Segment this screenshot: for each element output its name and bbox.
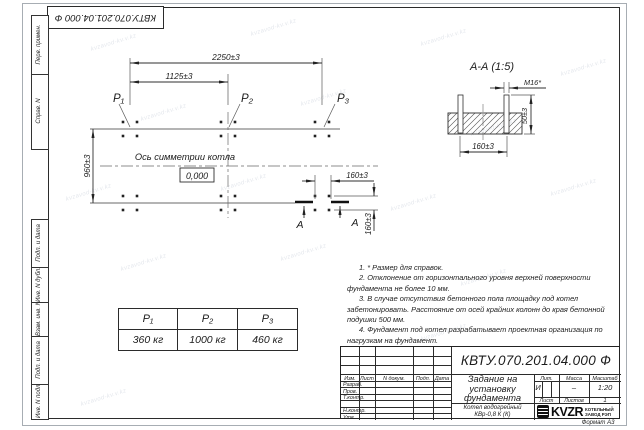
titleblock-col-podp: Подп. <box>413 376 433 382</box>
titleblock-gridline <box>341 365 451 366</box>
titleblock-product-line2: КВр-0,8 К (К) <box>451 411 534 418</box>
titleblock-scale-value: 1:20 <box>589 383 621 392</box>
titleblock-row-razrab: Разраб. <box>343 382 363 388</box>
dim-960-label: 960±3 <box>82 154 92 177</box>
drawing-sheet: kvzavod-kv.v.kz kvzavod-kv.v.kz kvzavod-… <box>0 0 644 430</box>
org-name-line1: КОТЕЛЬНЫЙ <box>585 407 614 412</box>
load-p2-label: P₂ <box>241 93 254 105</box>
titleblock-gridline <box>375 347 376 420</box>
titleblock-gridline <box>433 347 434 420</box>
load-table-value-p1: 360 кг <box>118 329 178 351</box>
titleblock-col-list: Лист <box>359 376 375 382</box>
titleblock-lit-label: Лит. <box>534 376 559 382</box>
titleblock-row-utv: Утв. <box>343 415 355 421</box>
load-p1-label: P₁ <box>113 93 125 105</box>
titleblock-lit-value: И <box>534 383 542 392</box>
load-table-header-p3: P₃ <box>237 308 298 330</box>
titleblock-gridline <box>542 381 543 397</box>
titleblock-col-izm: Изм. <box>341 376 359 382</box>
section-mark-a-left: А <box>295 219 303 231</box>
dim-50-label: 50±3 <box>520 108 529 124</box>
titleblock-gridline <box>413 347 414 420</box>
section-title: А-А (1:5) <box>469 61 514 73</box>
note-2: 2. Отклонение от горизонтального уровня … <box>347 273 607 294</box>
titleblock-massa-label: Масса <box>559 376 589 382</box>
note-4: 4. Фундамент под котел разрабатывает про… <box>347 325 607 346</box>
titleblock-sheets-value: 1 <box>589 398 621 404</box>
titleblock-sheet-label: Лист <box>534 398 559 404</box>
titleblock-product-line1: Котел водогрейный <box>451 404 534 411</box>
kvzr-logo-text: KVZR <box>551 405 583 419</box>
section-view: А-А (1:5) М16* 50±3 160±3 <box>448 61 546 157</box>
titleblock-massa-value: – <box>559 383 589 392</box>
load-table-header-p1: P₁ <box>118 308 178 330</box>
dim-1125-label: 1125±3 <box>165 71 192 81</box>
titleblock-row-nkontr: Н.контр. <box>343 408 366 414</box>
dim-160-horizontal-label: 160±3 <box>346 171 368 180</box>
kvzr-logo-icon <box>537 405 549 418</box>
load-p3-label: P₃ <box>337 93 350 105</box>
load-table-header-p2: P₂ <box>177 308 238 330</box>
dim-2250-label: 2250±3 <box>211 52 240 62</box>
titleblock-row-prov: Пров. <box>343 389 357 395</box>
symmetry-axis-label: Ось симметрии котла <box>135 152 235 162</box>
title-block: КВТУ.070.201.04.000 Ф Изм. Лист N докум.… <box>340 346 620 419</box>
titleblock-name-line3: фундамента <box>451 394 534 404</box>
level-mark-label: 0,000 <box>186 171 208 181</box>
note-1: 1. * Размер для справок. <box>347 263 607 273</box>
titleblock-doc-number: КВТУ.070.201.04.000 Ф <box>451 347 621 374</box>
format-label: Формат А3 <box>548 420 644 426</box>
titleblock-scale-label: Масштаб <box>589 376 621 382</box>
section-mark-a-right: А <box>350 217 358 229</box>
kvzr-logo: KVZR КОТЕЛЬНЫЙ ЗАВОД РЭП <box>537 404 619 419</box>
titleblock-row-tkontr: Т.контр. <box>343 395 365 401</box>
titleblock-col-data: Дата <box>433 376 451 382</box>
load-table: P₁ P₂ P₃ 360 кг 1000 кг 460 кг <box>118 308 298 352</box>
titleblock-col-ndocum: N докум. <box>375 376 413 382</box>
thread-m16-label: М16* <box>524 78 542 87</box>
note-3: 3. В случае отсутствия бетонного пола пл… <box>347 294 607 325</box>
org-name-line2: ЗАВОД РЭП <box>585 412 614 417</box>
titleblock-gridline <box>551 381 552 397</box>
notes-block: 1. * Размер для справок. 2. Отклонение о… <box>347 263 607 346</box>
titleblock-sheets-label: Листов <box>559 398 589 404</box>
titleblock-gridline <box>341 356 451 357</box>
load-table-value-p3: 460 кг <box>237 329 298 351</box>
dim-160-section-label: 160±3 <box>472 142 494 151</box>
dim-160-vertical-label: 160±3 <box>364 213 373 235</box>
plan-view: 2250±3 1125±3 960±3 P₁ P₂ P₃ Ось симметр… <box>82 52 378 235</box>
load-table-value-p2: 1000 кг <box>177 329 238 351</box>
